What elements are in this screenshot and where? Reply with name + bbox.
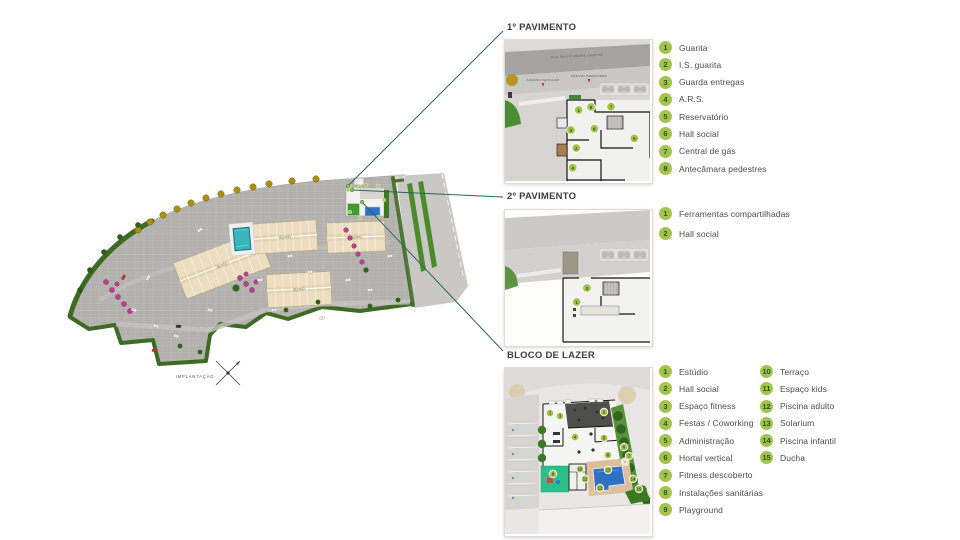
connector-line (348, 31, 503, 186)
building-block-b: BLOCO (252, 220, 318, 254)
legend-item: 14Piscina infantil (760, 434, 836, 447)
lazer-legend-col2: 10Terraço 11Espaço kids 12Piscina adulto… (760, 365, 836, 469)
legend-label: Solarium (780, 418, 814, 428)
plan-marker-number: 8 (590, 105, 593, 110)
legend-item: 11Espaço kids (760, 382, 836, 395)
parked-cars (121, 227, 393, 351)
plan-marker-number: 14 (631, 477, 636, 482)
floorplan (563, 278, 650, 342)
access-road (396, 173, 468, 308)
legend-number-badge: 5 (659, 434, 672, 447)
building-block-c: BLOCO (326, 221, 385, 253)
legend-label: Piscina adulto (780, 401, 834, 411)
legend-label: I.S. guarita (679, 60, 721, 70)
top-street (122, 174, 407, 248)
pav1-plan-panel: RUA PAULO FREIRE CAMPOS ACESSO VEICULAR … (504, 39, 653, 184)
legend-number-badge: 10 (760, 365, 773, 378)
parking-stalls (601, 84, 647, 94)
connector-line (352, 190, 503, 197)
legend-number-badge: 7 (659, 145, 672, 158)
connector-line (362, 202, 503, 351)
legend-label: Fitness descoberto (679, 470, 753, 480)
playground-area (541, 466, 569, 492)
legend-label: Antecâmara pedestres (679, 164, 767, 174)
legend-number-badge: 1 (659, 41, 672, 54)
lazer-title: BLOCO DE LAZER (507, 350, 595, 361)
legend-item: 2Hall social (659, 382, 763, 395)
legend-label: Hall social (679, 129, 719, 139)
tree-icon (618, 386, 636, 404)
drive-lane (116, 302, 410, 330)
legend-item: 6Hortal vertical (659, 451, 763, 464)
legend-number-badge: 2 (659, 227, 672, 240)
legend-item: 3Guarda entregas (659, 76, 767, 89)
brochure-canvas: BLOCO BLOCO BLOCO BLOCO (0, 0, 960, 540)
legend-label: Ducha (780, 453, 805, 463)
legend-label: Playground (679, 505, 723, 515)
legend-number-badge: 2 (659, 382, 672, 395)
legend-item: 7Fitness descoberto (659, 469, 763, 482)
left-trees (538, 426, 546, 462)
plan-marker-number: 10 (578, 467, 583, 472)
legend-item: 4Festas / Coworking (659, 417, 763, 430)
legend-label: Piscina infantil (780, 436, 836, 446)
legend-item: 12Piscina adulto (760, 400, 836, 413)
plan-marker-number: 6 (593, 127, 596, 132)
legend-label: Central de gás (679, 146, 736, 156)
legend-item: 5Administração (659, 434, 763, 447)
legend-item: 1Estúdio (659, 365, 763, 378)
plan-marker-number: 12 (598, 486, 603, 491)
legend-number-badge: 3 (659, 76, 672, 89)
plan-marker-number: 2 (575, 146, 578, 151)
access-pedestres-label: ACESSO PEDESTRES (571, 74, 607, 78)
legend-label: Reservatório (679, 112, 728, 122)
legend-number-badge: 4 (659, 93, 672, 106)
legend-number-badge: 15 (760, 451, 773, 464)
legend-number-badge: 2 (659, 58, 672, 71)
legend-item: 1Ferramentas compartilhadas (659, 207, 790, 220)
legend-number-badge: 1 (659, 207, 672, 220)
legend-label: Terraço (780, 367, 809, 377)
legend-item: 6Hall social (659, 127, 767, 140)
tree-icon (506, 74, 518, 86)
legend-label: Estúdio (679, 367, 708, 377)
pav1-title: 1º PAVIMENTO (507, 22, 576, 33)
legend-number-badge: 6 (659, 451, 672, 464)
plan-marker-number: 11 (583, 477, 588, 482)
legend-item: 13Solarium (760, 417, 836, 430)
building-label: BLOCO (216, 261, 228, 269)
legend-number-badge: 14 (760, 434, 773, 447)
legend-label: Instalações sanitárias (679, 488, 763, 498)
plan-marker-number: 15 (637, 487, 642, 492)
building-block-d: BLOCO (266, 271, 332, 307)
legend-label: Hortal vertical (679, 453, 732, 463)
street-trees (135, 176, 319, 233)
plan-marker-number: 13 (606, 468, 611, 473)
legend-label: Hall social (679, 229, 719, 239)
lazer-plan-panel: 132456879101113121415 (504, 367, 653, 537)
plan-marker-number: 2 (586, 286, 589, 291)
plan-caption: IMPLANTAÇÃO (176, 374, 215, 379)
legend-item: 5Reservatório (659, 110, 767, 123)
legend-label: Hall social (679, 384, 719, 394)
legend-number-badge: 13 (760, 417, 773, 430)
plan-marker-number: 4 (571, 166, 574, 171)
legend-item: 7Central de gás (659, 145, 767, 158)
compass-icon (216, 361, 240, 385)
main-pool (229, 222, 256, 256)
legend-item: 8Antecâmara pedestres (659, 162, 767, 175)
site-plan: BLOCO BLOCO BLOCO BLOCO (60, 160, 470, 405)
plan-marker-number: 3 (570, 128, 573, 133)
plan-marker-number: 7 (610, 105, 613, 110)
legend-item: 3Espaço fitness (659, 400, 763, 413)
legend-number-badge: 1 (659, 365, 672, 378)
building-label: BLOCO (293, 287, 305, 292)
site-parking-area (70, 176, 412, 363)
legend-label: Administração (679, 436, 734, 446)
plan-marker-number: 1 (575, 300, 578, 305)
lazer-legend-col1: 1Estúdio 2Hall social 3Espaço fitness 4F… (659, 365, 763, 521)
pool-area (586, 458, 633, 497)
entrance-guarita (348, 178, 364, 189)
legend-number-badge: 12 (760, 400, 773, 413)
border-trees (77, 222, 141, 293)
pav2-legend: 1Ferramentas compartilhadas 2Hall social (659, 207, 790, 247)
pav2-title: 2º PAVIMENTO (507, 191, 576, 202)
building-block-a: BLOCO (173, 231, 271, 299)
legend-number-badge: 8 (659, 486, 672, 499)
legend-number-badge: 5 (659, 110, 672, 123)
legend-item: 8Instalações sanitárias (659, 486, 763, 499)
drive-lane (100, 242, 390, 300)
legend-item: 9Playground (659, 503, 763, 516)
flowering-trees (103, 228, 364, 314)
legend-item: 1Guarita (659, 41, 767, 54)
legend-label: Ferramentas compartilhadas (679, 209, 790, 219)
legend-number-badge: 11 (760, 382, 773, 395)
legend-item: 10Terraço (760, 365, 836, 378)
legend-label: A.R.S. (679, 94, 704, 104)
legend-number-badge: 6 (659, 127, 672, 140)
legend-label: Guarita (679, 43, 708, 53)
legend-number-badge: 7 (659, 469, 672, 482)
leisure-block (346, 183, 389, 220)
plan-marker-number: 5 (633, 136, 636, 141)
plan-marker-number: 1 (577, 108, 580, 113)
legend-number-badge: 9 (659, 503, 672, 516)
building-label: BLOCO (350, 235, 362, 239)
legend-item: 2Hall social (659, 227, 790, 240)
legend-label: Espaço fitness (679, 401, 736, 411)
legend-label: Festas / Coworking (679, 418, 754, 428)
pav1-legend: 1Guarita 2I.S. guarita 3Guarda entregas … (659, 41, 767, 179)
legend-item: 2I.S. guarita (659, 58, 767, 71)
landscape-borders (70, 178, 413, 364)
green-trees (178, 267, 401, 354)
legend-number-badge: 8 (659, 162, 672, 175)
legend-number-badge: 4 (659, 417, 672, 430)
legend-label: Guarda entregas (679, 77, 744, 87)
legend-item: 15Ducha (760, 451, 836, 464)
legend-label: Espaço kids (780, 384, 827, 394)
access-vehicular-label: ACESSO VEICULAR (527, 78, 560, 82)
parking-stalls (601, 250, 647, 260)
legend-item: 4A.R.S. (659, 93, 767, 106)
pav2-plan-panel: 21 (504, 209, 653, 347)
legend-number-badge: 3 (659, 400, 672, 413)
building-label: BLOCO (279, 235, 291, 240)
